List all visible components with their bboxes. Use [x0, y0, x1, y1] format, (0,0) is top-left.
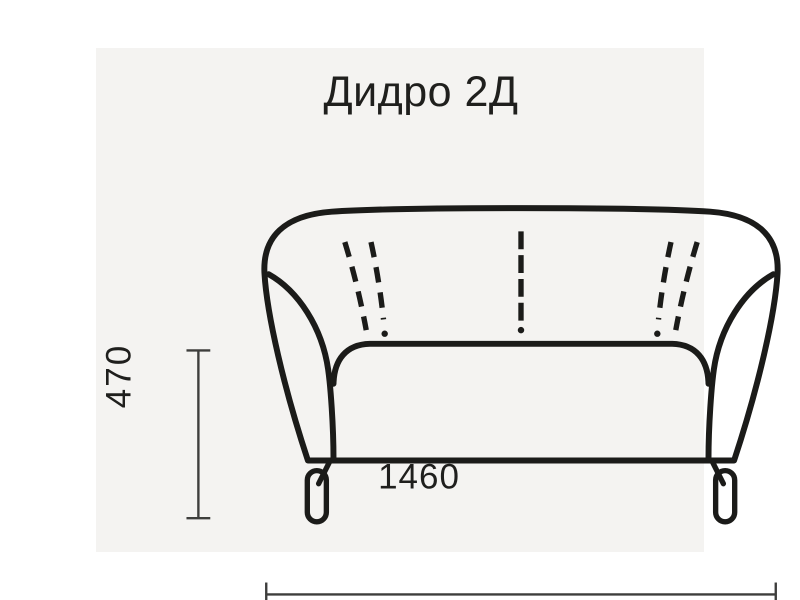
backrest-stitching-right: [654, 242, 697, 337]
stitch-dot: [654, 331, 660, 337]
backrest-stitching-left: [345, 242, 388, 337]
height-dimension-label: 470: [102, 344, 137, 408]
right-leg: [713, 462, 735, 522]
product-title: Дидро 2Д: [323, 71, 518, 114]
width-dimension-line: [266, 583, 776, 600]
backrest-stitching-center: [518, 231, 524, 333]
left-leg: [307, 462, 329, 522]
seat-cushion: [334, 344, 709, 384]
page-background: Дидро 2Д 470 1460: [0, 0, 800, 600]
width-dimension-label: 1460: [378, 460, 460, 495]
height-dimension-line: [186, 350, 210, 518]
stitch-dot: [381, 331, 387, 337]
sofa-technical-drawing: [96, 48, 800, 600]
stitch-dot: [518, 327, 524, 333]
